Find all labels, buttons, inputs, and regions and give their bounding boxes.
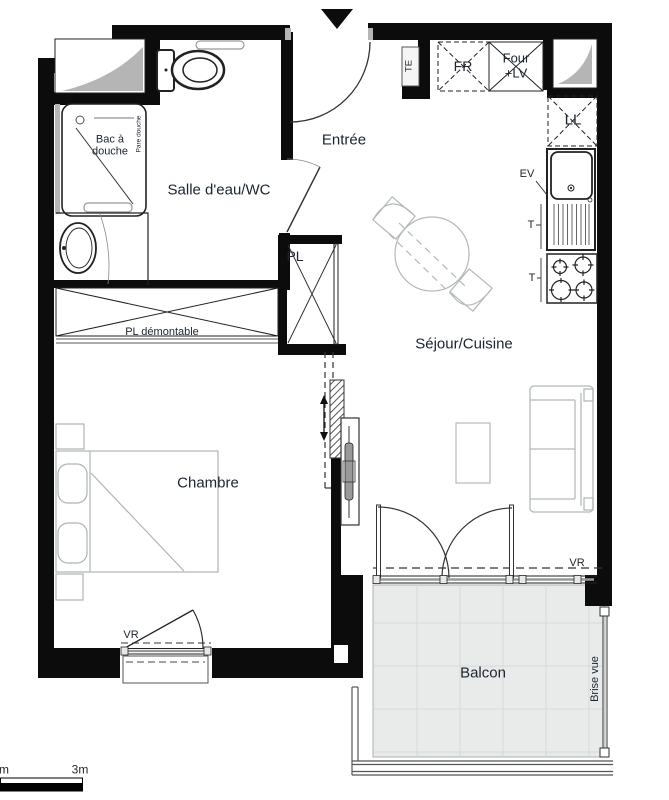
worktop-label-2: T — [529, 272, 536, 284]
door-jambs — [285, 28, 373, 40]
scale-bar — [1, 778, 83, 791]
room-label-balcon: Balcon — [460, 666, 506, 683]
wall-notch — [334, 645, 348, 663]
cooktop — [547, 254, 597, 303]
fridge-label: FR — [454, 59, 473, 75]
shaft-top-left — [55, 39, 145, 93]
closet-pl-label: PL — [286, 249, 303, 265]
toilet — [157, 41, 244, 91]
privacy-screen-label: Brise vue — [589, 656, 601, 702]
shaft-top-right — [553, 39, 597, 88]
nightstand — [56, 574, 83, 600]
washbasin — [56, 213, 148, 285]
room-label-salle-eau: Salle d'eau/WC — [168, 183, 271, 200]
shutter-label-chambre: VR — [123, 629, 138, 641]
room-label-entree: Entrée — [322, 133, 366, 150]
worktop-label-1: T — [528, 219, 535, 231]
scale-left-label: m — [0, 763, 9, 776]
sink-label: EV — [520, 168, 535, 180]
washer-label: LL — [565, 113, 582, 130]
pillow — [58, 464, 87, 503]
floor-plan: Entrée Salle d'eau/WC Séjour/Cuisine Cha… — [0, 0, 669, 800]
entrance-arrow-icon — [321, 9, 353, 29]
dining-table — [373, 197, 492, 311]
bathroom-door — [287, 159, 320, 232]
tv-unit — [341, 418, 359, 525]
bed — [56, 424, 218, 600]
balcony-doors — [373, 505, 607, 584]
sofa — [530, 386, 593, 512]
shower — [55, 104, 146, 216]
nightstand — [56, 424, 84, 449]
room-label-chambre: Chambre — [177, 476, 239, 493]
room-label-sejour: Séjour/Cuisine — [415, 337, 513, 354]
kitchen-sink — [547, 149, 595, 250]
shutter-label-sejour: VR — [569, 557, 584, 569]
closet-pl-demontable-label: PL démontable — [125, 326, 199, 338]
towel-bar — [196, 41, 244, 49]
bedroom-window — [121, 610, 211, 683]
pillow — [58, 523, 87, 563]
oven-dishwasher-label: Four +LV — [503, 51, 530, 80]
coffee-table — [456, 423, 490, 483]
shower-tray-label: Bac à douche — [92, 134, 128, 159]
kitchen-leader-lines — [536, 181, 547, 302]
scale-right-label: 3m — [72, 763, 89, 776]
shower-screen-label: Pare douche — [135, 116, 142, 153]
entrance-door-swing — [290, 42, 370, 122]
electrical-panel-label: TE — [405, 60, 416, 72]
